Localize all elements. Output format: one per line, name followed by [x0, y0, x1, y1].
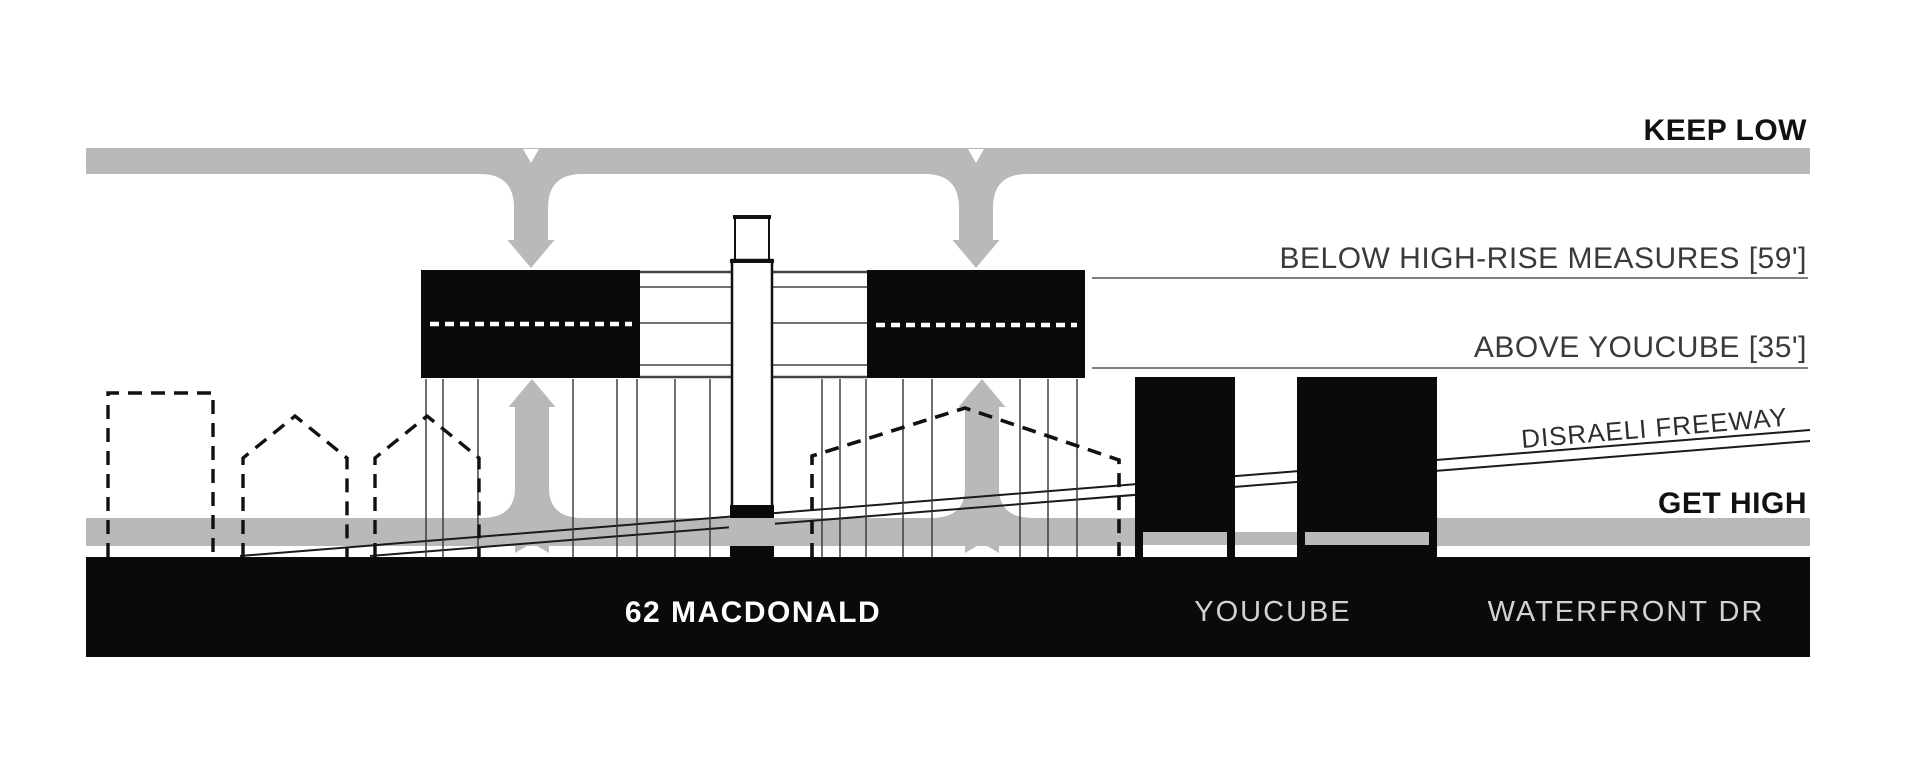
core-tower [729, 216, 775, 557]
youcube-right-block [1297, 377, 1437, 557]
upper-street-band [86, 148, 1810, 174]
youcube-left-block [1135, 377, 1235, 557]
62-macdonald-left-block [421, 270, 640, 378]
keep-low-label: KEEP LOW [1644, 114, 1808, 147]
ground-street-band [86, 518, 1810, 546]
waterfront-label: WATERFRONT DR [1488, 596, 1765, 628]
macdonald-label: 62 MACDONALD [625, 596, 881, 629]
youcube-label: YOUCUBE [1194, 596, 1351, 628]
get-high-label: GET HIGH [1658, 487, 1807, 520]
62-macdonald-right-block [867, 270, 1085, 378]
below-highrise-label: BELOW HIGH-RISE MEASURES [59'] [1279, 242, 1807, 275]
above-youcube-label: ABOVE YOUCUBE [35'] [1474, 331, 1807, 364]
band-over-tower [729, 518, 775, 546]
section-diagram: KEEP LOW BELOW HIGH-RISE MEASURES [59'] … [0, 0, 1920, 782]
